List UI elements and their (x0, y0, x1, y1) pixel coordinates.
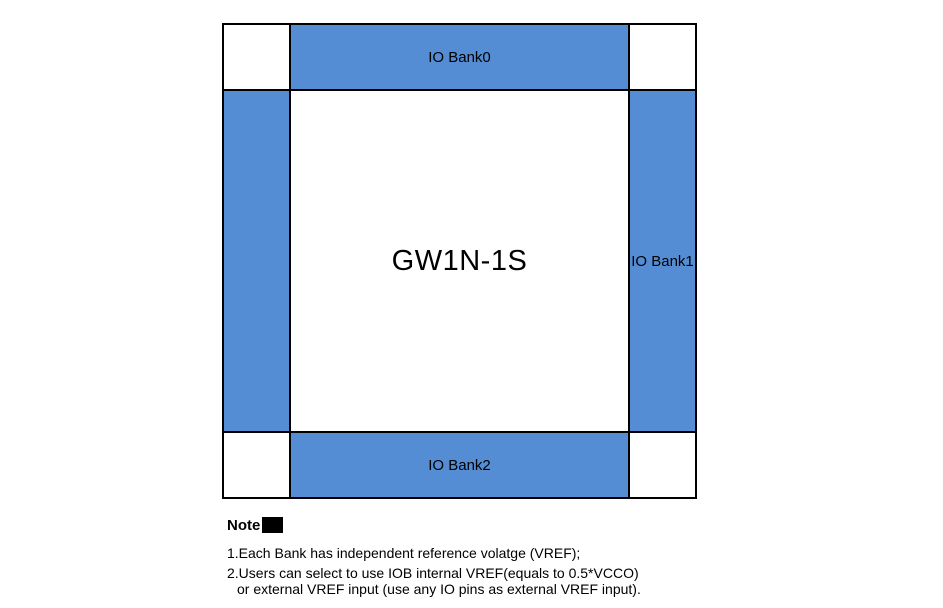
corner-bottom-left (224, 433, 289, 497)
notes-section: Note 1.Each Bank has independent referen… (227, 516, 667, 597)
figure-page: IO Bank0 GW1N-1S IO Bank1 IO Bank2 Note … (0, 0, 943, 608)
io-bank-block-diagram: IO Bank0 GW1N-1S IO Bank1 IO Bank2 (222, 23, 697, 499)
io-bank-left-region (224, 91, 289, 431)
corner-top-right (630, 25, 695, 89)
note-heading-row: Note (227, 516, 667, 534)
corner-top-left (224, 25, 289, 89)
io-bank2-label: IO Bank2 (428, 458, 491, 473)
note-item-2: 2.Users can select to use IOB internal V… (227, 565, 667, 597)
note-heading: Note (227, 518, 260, 533)
corner-bottom-right (630, 433, 695, 497)
io-bank1-label: IO Bank1 (631, 254, 694, 269)
note-item-1: 1.Each Bank has independent reference vo… (227, 545, 667, 561)
note-item-1-text: 1.Each Bank has independent reference vo… (227, 545, 667, 561)
io-bank0-label: IO Bank0 (428, 50, 491, 65)
io-bank0-region: IO Bank0 (291, 25, 628, 89)
io-bank2-region: IO Bank2 (291, 433, 628, 497)
chip-name-label: GW1N-1S (392, 247, 528, 276)
note-item-2-line-1: 2.Users can select to use IOB internal V… (227, 565, 667, 581)
chip-core-region: GW1N-1S (291, 91, 628, 431)
note-item-2-line-2: or external VREF input (use any IO pins … (227, 581, 667, 597)
black-box-glyph-icon (262, 517, 283, 533)
io-bank1-region: IO Bank1 (630, 91, 695, 431)
